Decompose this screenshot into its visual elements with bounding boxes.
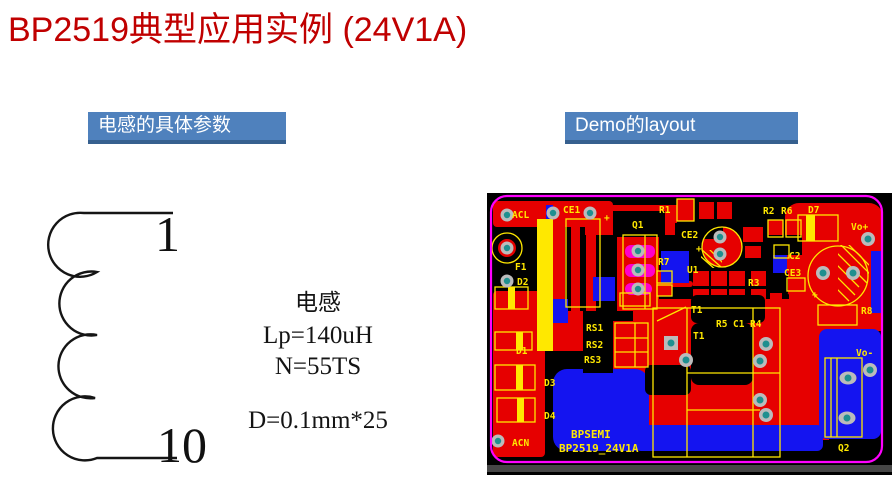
label-r1: R1 — [659, 205, 671, 216]
coil-pin-top-label: 1 — [155, 206, 180, 262]
label-d2: D2 — [517, 277, 528, 288]
brand-bpsemi: BPSEMI — [571, 428, 611, 441]
pcb-image-bottom-strip — [487, 465, 892, 472]
label-q1: Q1 — [632, 220, 644, 231]
page-title: BP2519典型应用实例 (24V1A) — [8, 2, 467, 51]
label-r4: R4 — [750, 319, 762, 330]
plus-mark-ce2: + — [696, 244, 702, 255]
header-demo-layout: Demo的layout — [565, 112, 798, 144]
label-d4: D4 — [544, 411, 556, 422]
label-d1: D1 — [516, 346, 528, 357]
label-acl: ACL — [512, 210, 529, 221]
label-acn: ACN — [512, 438, 529, 449]
slide: BP2519典型应用实例 (24V1A) 电感的具体参数 Demo的layout… — [0, 0, 892, 479]
label-t1: T1 — [693, 331, 705, 342]
label-ce3: CE3 — [784, 268, 801, 279]
header-inductor-params: 电感的具体参数 — [88, 112, 286, 144]
brand-bp2519: BP2519_24V1A — [559, 442, 639, 455]
plus-mark-ce1: + — [604, 213, 610, 224]
label-vo-minus: Vo- — [856, 348, 873, 359]
inductor-specs: 电感 Lp=140uH N=55TS D=0.1mm*25 — [212, 286, 424, 436]
spec-turns: N=55TS — [212, 351, 424, 382]
plus-mark-output-cap: + — [812, 290, 818, 301]
label-rs3: RS3 — [584, 355, 601, 366]
spec-inductance: Lp=140uH — [212, 320, 424, 351]
label-vo-plus: Vo+ — [851, 222, 868, 233]
spec-name: 电感 — [212, 286, 424, 320]
label-d7: D7 — [808, 205, 819, 216]
label-ce1: CE1 — [563, 205, 580, 216]
spec-wire-diameter: D=0.1mm*25 — [212, 405, 424, 436]
label-rs2: RS2 — [586, 340, 603, 351]
label-c1: C1 — [733, 319, 745, 330]
label-f1: F1 — [515, 262, 527, 273]
label-ce2: CE2 — [681, 230, 698, 241]
coil-pin-bottom-label: 10 — [157, 417, 207, 473]
label-t1-top: T1 — [691, 305, 703, 316]
label-d3: D3 — [544, 378, 556, 389]
pcb-layout-image: ACL CE1 + Q1 R1 R2 R6 D7 Vo+ CE2 + F1 D2… — [487, 193, 892, 475]
label-rs1: RS1 — [586, 323, 603, 334]
label-r2: R2 — [763, 206, 774, 217]
label-c2: C2 — [789, 251, 800, 262]
label-r5: R5 — [716, 319, 728, 330]
label-r6: R6 — [781, 206, 793, 217]
label-u1: U1 — [687, 265, 699, 276]
label-r3: R3 — [748, 278, 760, 289]
label-r8: R8 — [861, 306, 873, 317]
bulk-cap-yellow-bar — [537, 219, 553, 351]
label-r7: R7 — [658, 257, 669, 268]
label-q2: Q2 — [838, 443, 849, 454]
